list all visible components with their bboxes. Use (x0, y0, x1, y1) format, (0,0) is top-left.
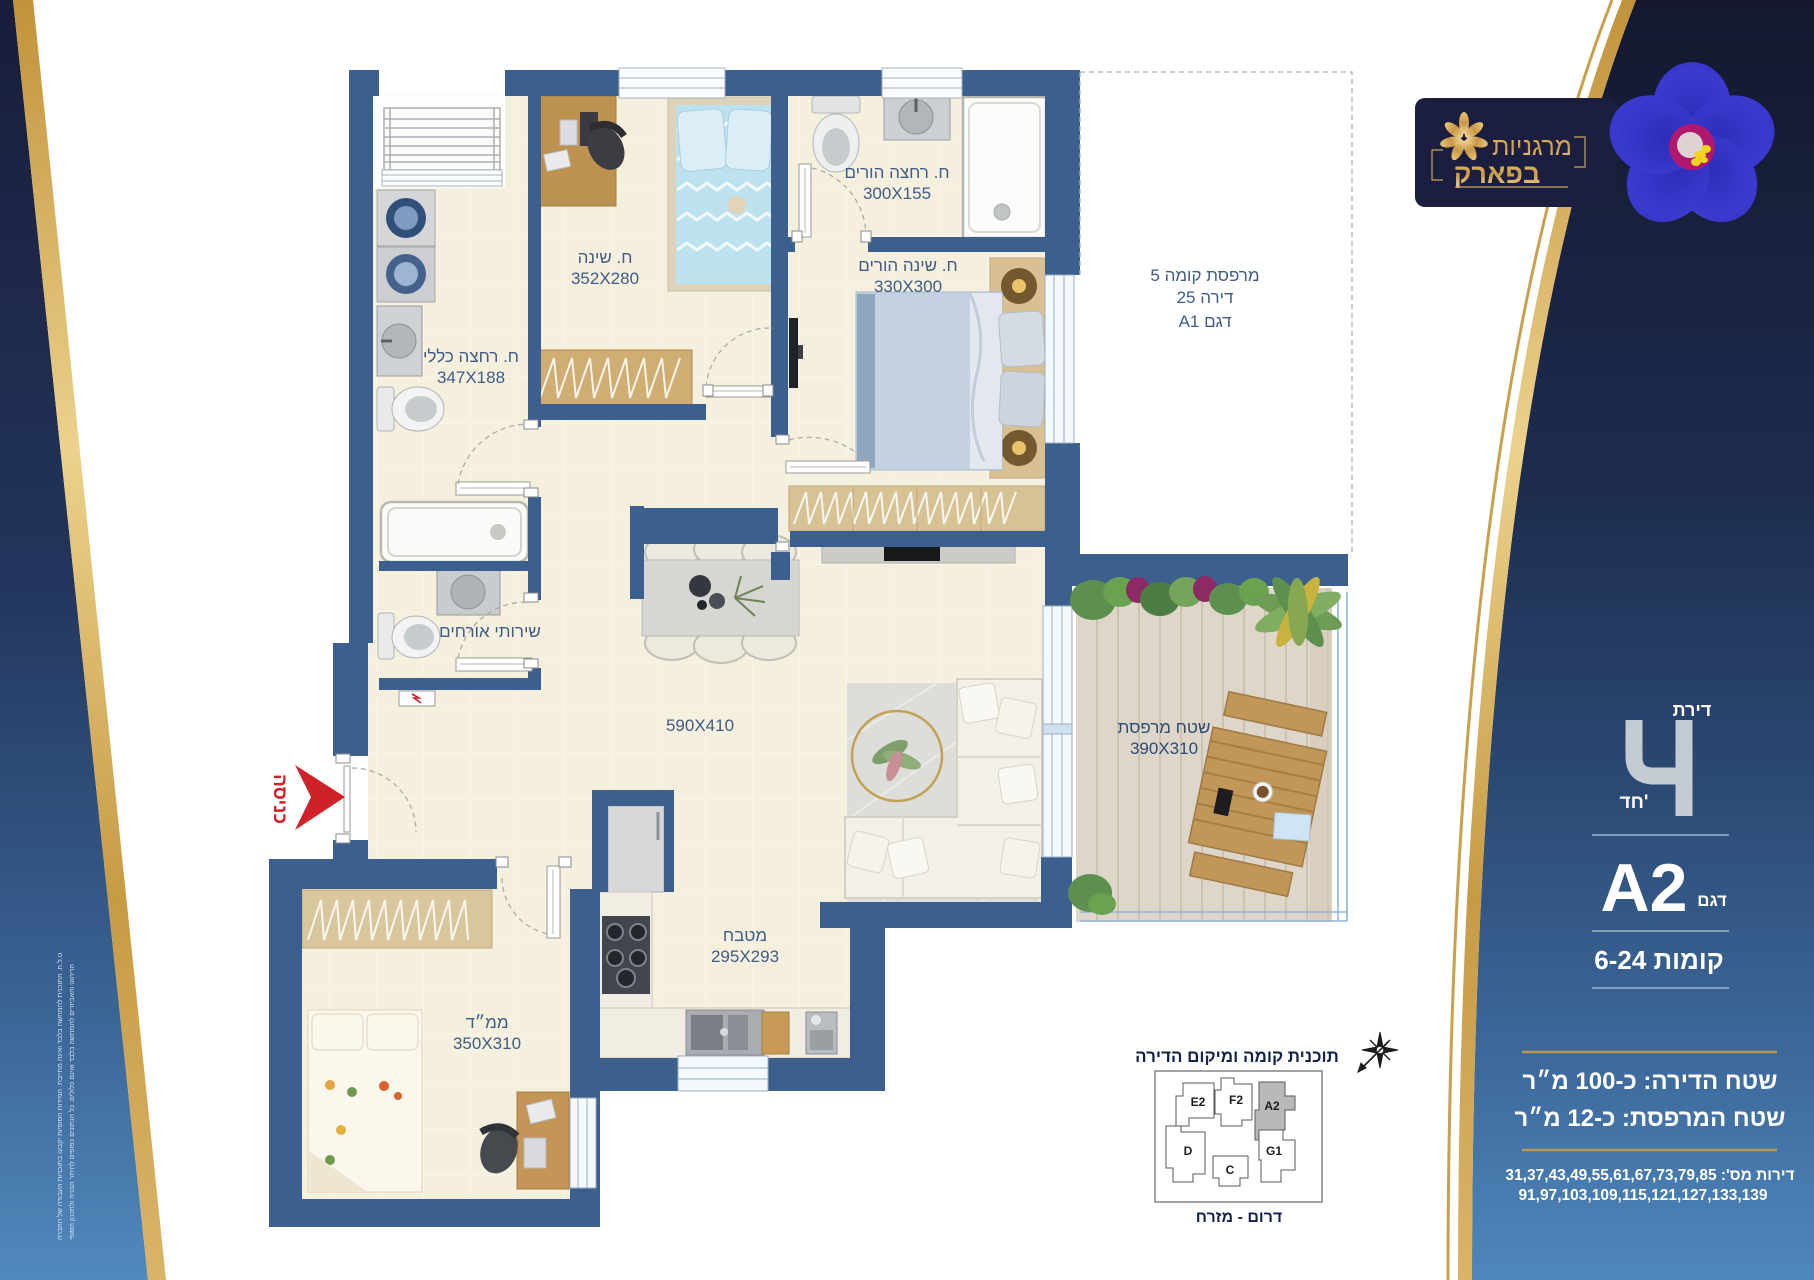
svg-text:390X310: 390X310 (1130, 739, 1198, 758)
svg-text:קומות 6-24: קומות 6-24 (1594, 945, 1724, 975)
svg-text:G1: G1 (1266, 1144, 1282, 1158)
svg-text:D: D (1184, 1144, 1193, 1158)
svg-text:ח. רחצה הורים: ח. רחצה הורים (844, 163, 949, 182)
svg-text:ממ״ד: ממ״ד (465, 1013, 508, 1032)
svg-text:דירות מס': 31,37,43,49,55,61,6: דירות מס': 31,37,43,49,55,61,67,73,79,85 (1505, 1167, 1794, 1184)
svg-text:מרפסת קומה 5: מרפסת קומה 5 (1150, 266, 1259, 285)
svg-text:590X410: 590X410 (666, 716, 734, 735)
svg-text:חד': חד' (1620, 792, 1649, 813)
svg-text:330X300: 330X300 (874, 277, 942, 296)
svg-text:שטח הדירה: כ-100 מ״ר: שטח הדירה: כ-100 מ״ר (1523, 1068, 1778, 1095)
svg-text:שטח מרפסת: שטח מרפסת (1118, 718, 1211, 737)
svg-text:91,97,103,109,115,121,127,133,: 91,97,103,109,115,121,127,133,139 (1518, 1187, 1767, 1204)
svg-text:ח. רחצה כללי: ח. רחצה כללי (423, 347, 519, 366)
svg-text:347X188: 347X188 (437, 368, 505, 387)
svg-text:דגם: דגם (1697, 891, 1727, 910)
svg-text:שטח המרפסת: כ-12 מ״ר: שטח המרפסת: כ-12 מ״ר (1515, 1105, 1786, 1132)
svg-text:תוכנית קומה ומיקום הדירה: תוכנית קומה ומיקום הדירה (1135, 1047, 1339, 1066)
svg-text:A2: A2 (1264, 1099, 1280, 1113)
svg-text:שירותי אורחים: שירותי אורחים (439, 622, 541, 641)
svg-text:350X310: 350X310 (453, 1034, 521, 1053)
svg-text:C: C (1226, 1163, 1235, 1177)
svg-text:בפארק: בפארק (1454, 159, 1541, 189)
svg-text:A2: A2 (1601, 850, 1688, 926)
svg-text:F2: F2 (1229, 1093, 1243, 1107)
svg-text:דרום - מזרח: דרום - מזרח (1196, 1209, 1283, 1226)
svg-text:352X280: 352X280 (571, 269, 639, 288)
svg-text:דירה 25: דירה 25 (1177, 288, 1234, 307)
svg-text:דגם A1: דגם A1 (1179, 312, 1232, 331)
svg-text:ט.ל.ח. התוכנית להמחשה בלבד ואי: ט.ל.ח. התוכנית להמחשה בלבד ואינה מחייבת.… (56, 952, 64, 1240)
svg-text:דירת: דירת (1673, 700, 1712, 720)
svg-text:295X293: 295X293 (711, 947, 779, 966)
svg-text:300X155: 300X155 (863, 184, 931, 203)
svg-text:מטבח: מטבח (723, 926, 767, 945)
svg-text:מרגניות: מרגניות (1492, 133, 1572, 161)
svg-text:הריהוט והאביזרים להמחשה בלבד ו: הריהוט והאביזרים להמחשה בלבד ואינם כלולי… (68, 964, 76, 1240)
svg-text:ח. שינה: ח. שינה (578, 248, 633, 267)
svg-text:כניסה: כניסה (269, 774, 290, 824)
svg-text:E2: E2 (1191, 1095, 1206, 1109)
svg-text:ח. שינה הורים: ח. שינה הורים (858, 256, 957, 275)
